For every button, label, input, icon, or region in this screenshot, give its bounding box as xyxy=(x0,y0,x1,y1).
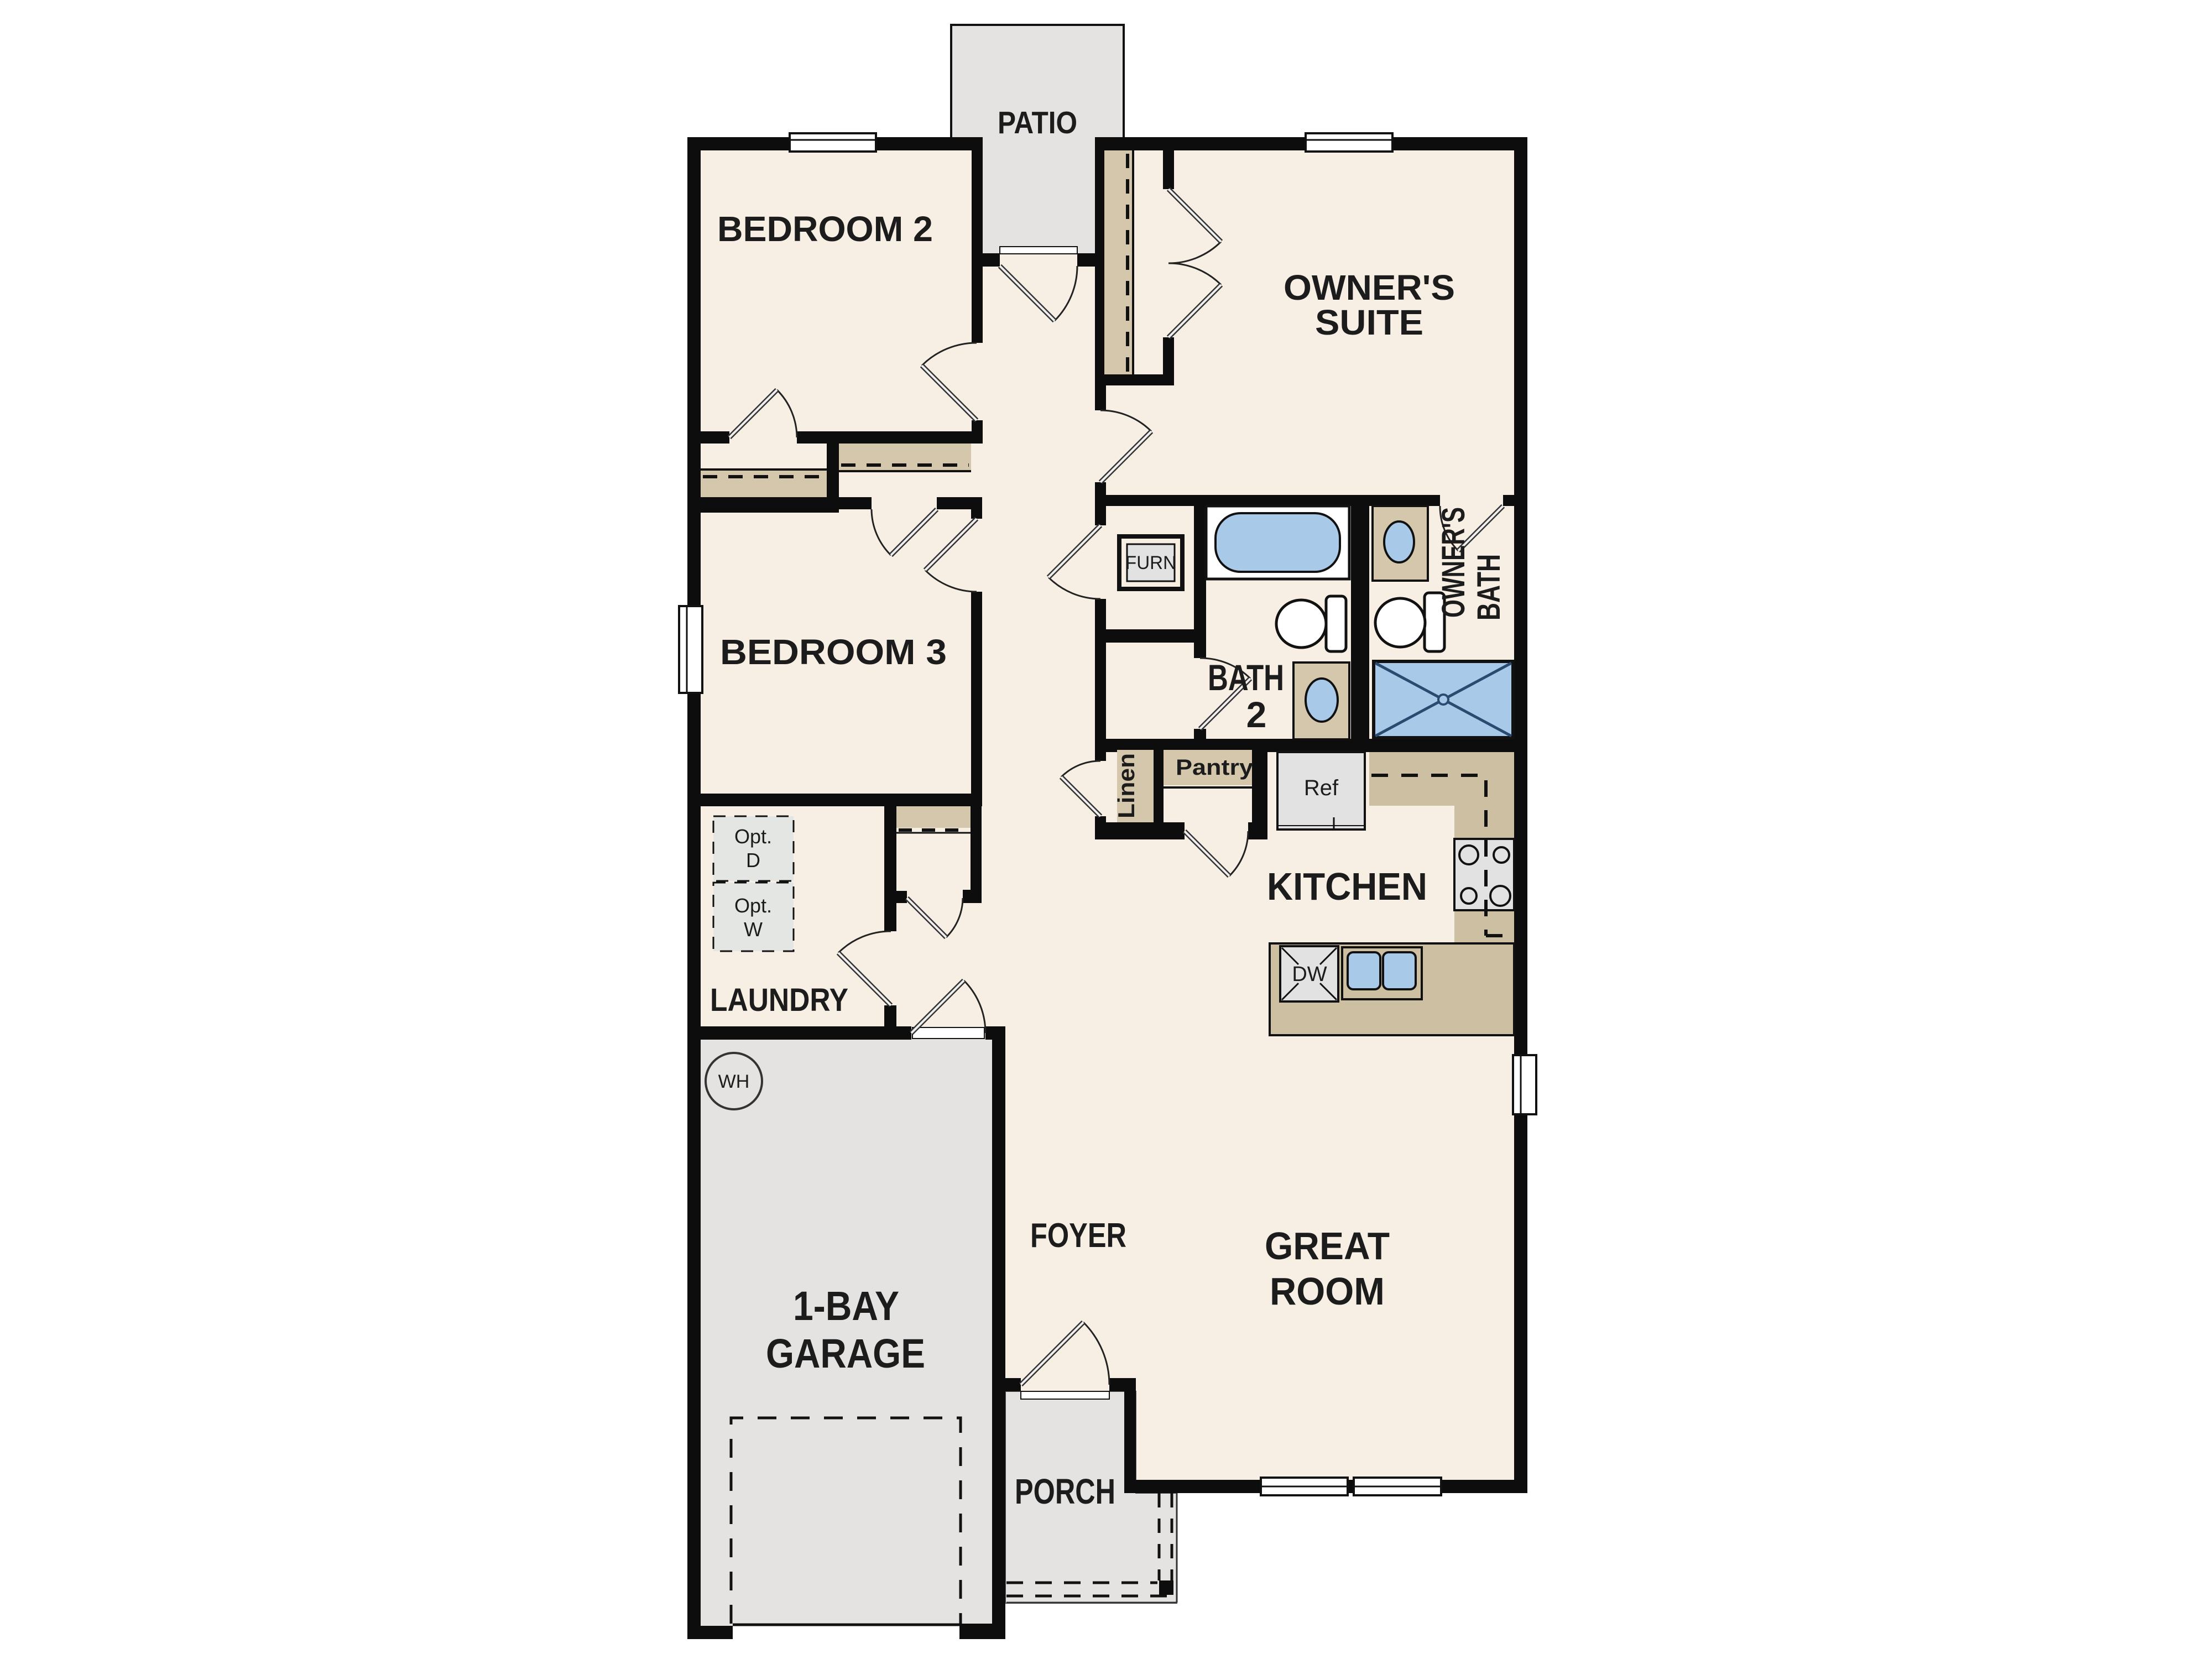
svg-text:GARAGE: GARAGE xyxy=(766,1331,925,1376)
svg-text:Opt.: Opt. xyxy=(734,894,772,917)
svg-text:Pantry: Pantry xyxy=(1176,755,1254,780)
svg-text:BEDROOM 2: BEDROOM 2 xyxy=(717,209,933,249)
svg-text:Linen: Linen xyxy=(1113,753,1139,818)
svg-text:OWNER'S: OWNER'S xyxy=(1436,507,1472,618)
svg-text:BEDROOM 3: BEDROOM 3 xyxy=(720,632,947,672)
svg-text:BATH: BATH xyxy=(1471,554,1507,620)
svg-text:SUITE: SUITE xyxy=(1315,302,1423,342)
svg-text:WH: WH xyxy=(718,1071,750,1092)
svg-text:Ref: Ref xyxy=(1304,776,1339,800)
svg-text:DW: DW xyxy=(1292,963,1327,986)
svg-text:FURN: FURN xyxy=(1125,552,1176,573)
svg-text:KITCHEN: KITCHEN xyxy=(1267,865,1427,908)
svg-text:GREAT: GREAT xyxy=(1265,1224,1390,1267)
svg-text:OWNER'S: OWNER'S xyxy=(1284,268,1455,307)
svg-text:Opt.: Opt. xyxy=(734,825,772,848)
svg-text:PORCH: PORCH xyxy=(1015,1472,1115,1511)
svg-text:FOYER: FOYER xyxy=(1030,1217,1126,1255)
svg-text:LAUNDRY: LAUNDRY xyxy=(710,982,848,1018)
svg-text:ROOM: ROOM xyxy=(1270,1270,1385,1313)
svg-text:2: 2 xyxy=(1246,694,1267,735)
svg-text:1-BAY: 1-BAY xyxy=(793,1283,899,1329)
svg-text:D: D xyxy=(746,849,760,872)
svg-text:PATIO: PATIO xyxy=(998,105,1077,140)
svg-text:W: W xyxy=(744,918,763,941)
svg-text:BATH: BATH xyxy=(1208,657,1284,698)
